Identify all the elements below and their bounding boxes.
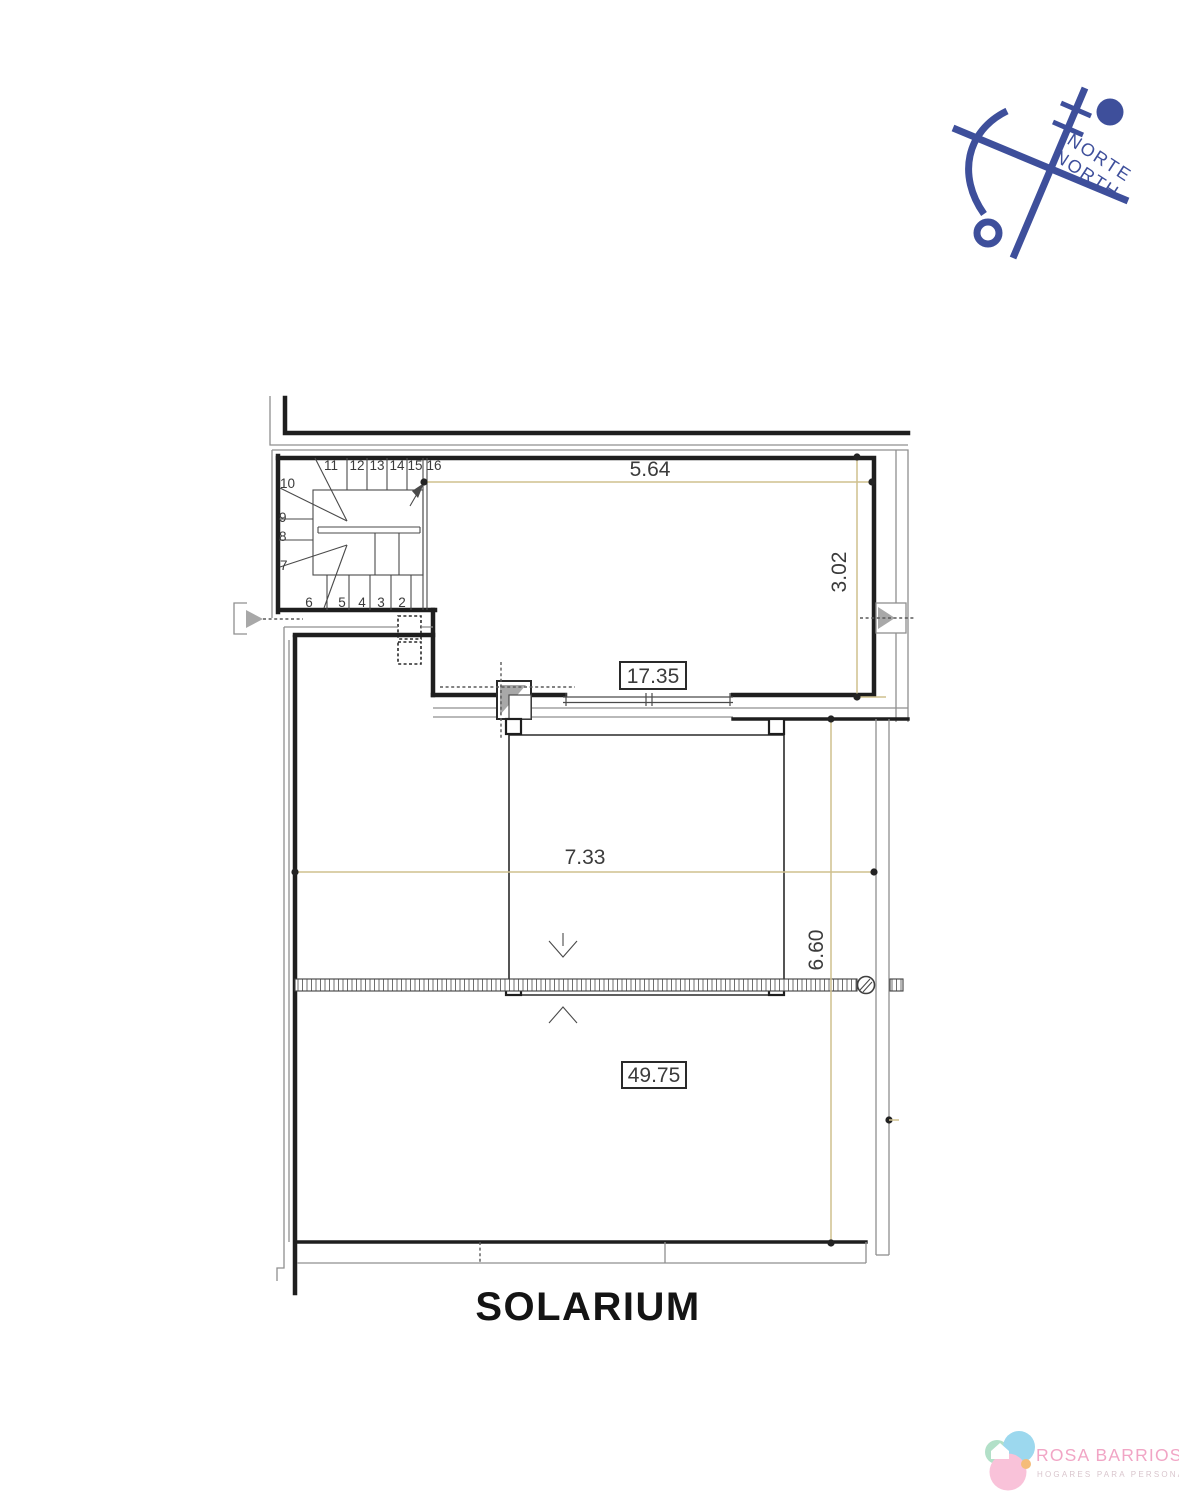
- stair-step-number: 2: [398, 595, 406, 610]
- logo-circle-pink: [990, 1454, 1027, 1491]
- rosa-barrios-logo: ROSA BARRIOS HOGARES PARA PERSONAS: [985, 1431, 1179, 1491]
- brand-tagline: HOGARES PARA PERSONAS: [1037, 1470, 1179, 1479]
- down-arrow-icon: [549, 933, 577, 957]
- dimension-upper-depth: 3.02: [828, 453, 886, 700]
- stair-step-number: 4: [358, 595, 366, 610]
- boundary-walls-top: [270, 396, 908, 445]
- drain-icon: [858, 977, 875, 994]
- plan-title: SOLARIUM: [475, 1285, 700, 1329]
- dimension-endpoint: [870, 868, 877, 875]
- area-value: 17.35: [627, 665, 680, 688]
- area-label-upper: 17.35: [620, 662, 686, 689]
- dimension-label: 6.60: [805, 930, 828, 971]
- terrace-walls: [277, 627, 889, 1293]
- stair-step-number: 12: [349, 458, 364, 473]
- dimension-endpoint: [827, 715, 834, 722]
- pergola-post: [769, 719, 784, 734]
- upper-block-walls: [272, 450, 908, 722]
- floor-plan-drawing: NORTE NORTH: [0, 0, 1179, 1497]
- stair-step-number: 11: [324, 458, 338, 473]
- pergola: [506, 719, 784, 995]
- area-label-terrace: 49.75: [622, 1062, 686, 1088]
- dimension-endpoint: [827, 1239, 834, 1246]
- stair-step-number: 6: [305, 595, 313, 610]
- pergola-post: [506, 719, 521, 734]
- window-band: [563, 693, 733, 706]
- stair-step-number: 13: [369, 458, 384, 473]
- stair-step-number: 9: [279, 510, 287, 525]
- stair-step-number: 3: [377, 595, 385, 610]
- brand-name: ROSA BARRIOS: [1036, 1445, 1179, 1465]
- dimension-endpoint: [868, 478, 875, 485]
- stair-step-number: 15: [407, 458, 422, 473]
- section-marker-left: [234, 603, 303, 634]
- dimension-terrace-width: 7.33: [291, 846, 877, 876]
- up-arrow-icon: [549, 1007, 577, 1023]
- stair-step-number: 16: [426, 458, 441, 473]
- stair-step-number: 7: [280, 558, 288, 573]
- dimension-endpoint: [853, 693, 860, 700]
- dimension-endpoint: [291, 868, 298, 875]
- compass-ring: [977, 222, 999, 244]
- parapet: [297, 1242, 866, 1263]
- stair-step-number: 14: [389, 458, 405, 473]
- stair-direction-arrow-icon: [410, 483, 424, 506]
- dimension-endpoint: [420, 478, 427, 485]
- logo-circle-orange: [1021, 1459, 1031, 1469]
- north-compass-icon: NORTE NORTH: [953, 88, 1136, 258]
- stair-step-number: 5: [338, 595, 346, 610]
- glass-railing: [295, 977, 903, 994]
- dimension-endpoint: [853, 453, 860, 460]
- compass-north-dot: [1097, 99, 1124, 126]
- stair-step-number: 10: [280, 476, 295, 491]
- architectural-plan-page: NORTE NORTH: [0, 0, 1179, 1497]
- dimension-label: 3.02: [828, 552, 851, 593]
- stair-step-number: 8: [279, 529, 287, 544]
- vent-grilles: [398, 616, 421, 664]
- area-value: 49.75: [628, 1064, 681, 1087]
- dimension-upper-width: 5.64: [420, 458, 875, 486]
- boundary-dimension-point: [885, 1116, 899, 1123]
- section-arrow-icon: [246, 610, 263, 628]
- dimension-label: 7.33: [565, 846, 606, 869]
- staircase: 11 12 13 14 15 16 10 9 8 7 6 5 4 3 2: [279, 458, 442, 610]
- dimension-label: 5.64: [630, 458, 671, 481]
